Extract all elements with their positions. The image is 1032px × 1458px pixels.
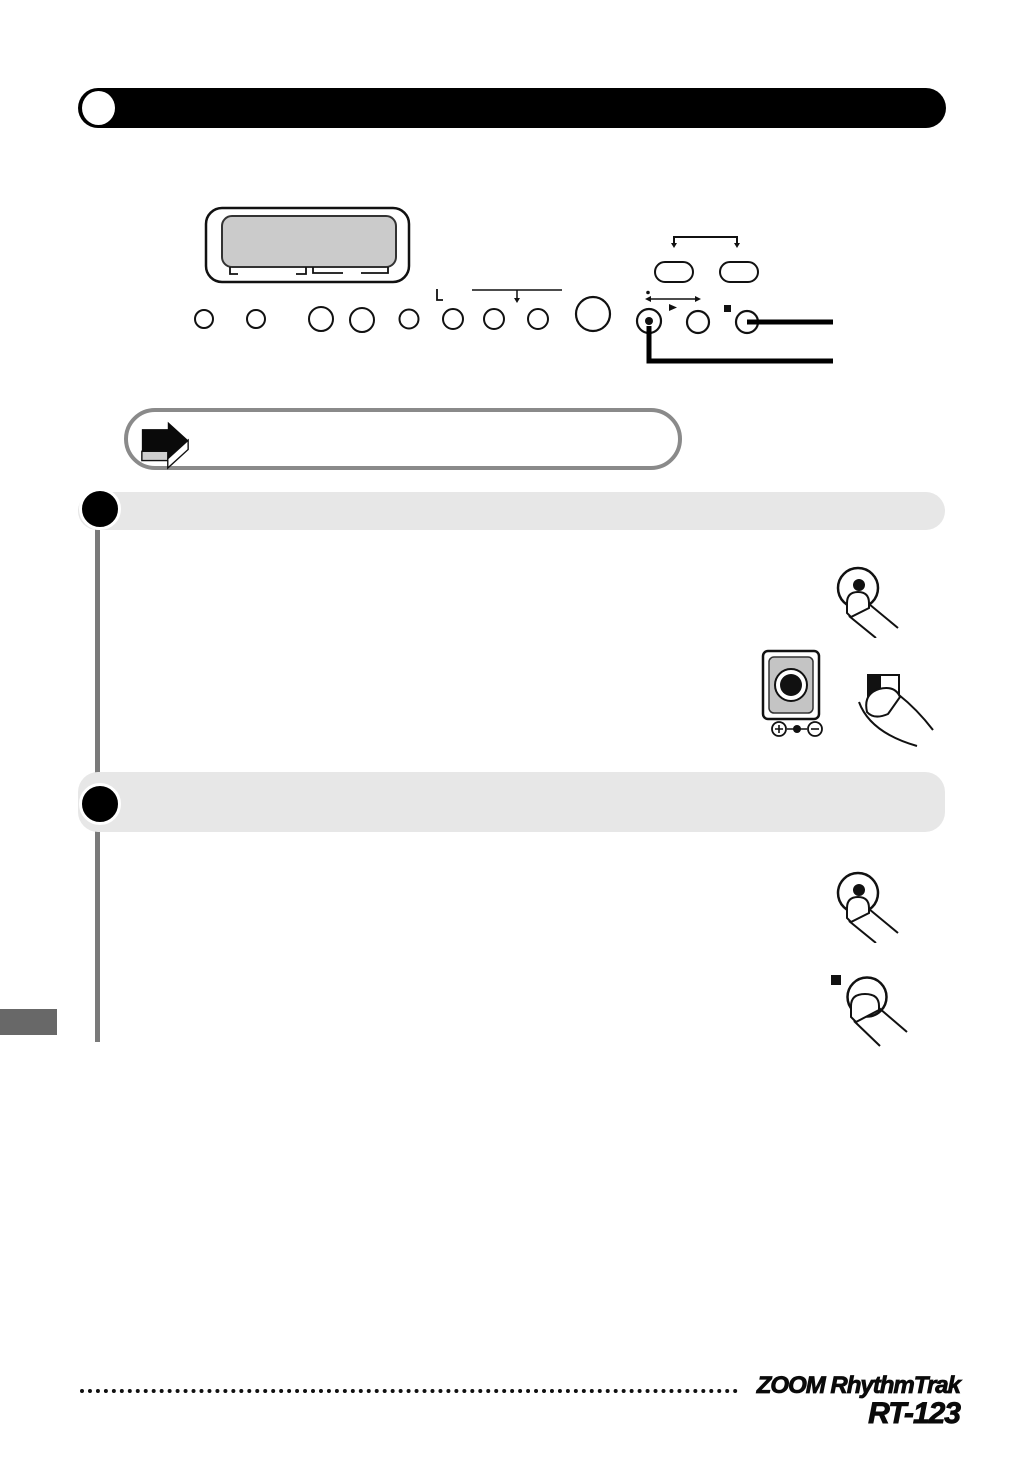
hint-callout [124, 408, 682, 470]
range-arrow-left-icon [645, 296, 651, 302]
play-icon [669, 304, 677, 311]
panel-button-8 [528, 309, 548, 329]
fingernail [851, 994, 879, 1022]
panel-button-7 [484, 309, 504, 329]
center-detent-icon [793, 725, 801, 733]
step-2-bar [78, 772, 945, 832]
panel-button-5 [400, 310, 419, 329]
stop-icon [831, 975, 841, 985]
arrow-right-3d-icon [140, 416, 190, 470]
fingernail [866, 688, 900, 717]
brand-name: ZOOM RhythmTrak [757, 1374, 960, 1398]
footer-dotted-rule [80, 1389, 738, 1393]
pill-button-2 [720, 262, 758, 282]
lcd-screen [222, 216, 396, 267]
pad-center [780, 674, 802, 696]
play-button [687, 311, 709, 333]
bracket-arrow-right-icon [734, 243, 740, 248]
overline-arrow-tip-icon [514, 298, 520, 303]
record-dot-icon [645, 317, 653, 325]
panel-button-1 [195, 310, 213, 328]
bracket-arrow-left-icon [671, 243, 677, 248]
range-dot-icon [646, 291, 650, 295]
footer-brand: ZOOM RhythmTrak RT-123 [757, 1374, 960, 1429]
panel-button-2 [247, 310, 265, 328]
range-arrow-right-icon [695, 296, 701, 302]
finger-press-record-illustration-1 [818, 558, 900, 638]
finger-press-stop-illustration [820, 968, 910, 1048]
step-2-number-marker [79, 783, 121, 825]
group-overline-bracket [472, 290, 562, 298]
step-1-number-marker [79, 488, 121, 530]
panel-button-6 [443, 309, 463, 329]
record-dot-icon [853, 579, 865, 591]
page-index-tab [0, 1009, 57, 1035]
brand-model: RT-123 [757, 1399, 960, 1429]
large-dial-button [576, 297, 610, 331]
pill-pair-bracket [674, 237, 737, 243]
panel-button-3 [309, 307, 333, 331]
fingernail [847, 592, 869, 617]
record-dot-icon [853, 884, 865, 896]
step-1-bar [78, 492, 945, 530]
finger-press-record-illustration-2 [818, 863, 900, 943]
corner-mark [437, 289, 443, 300]
fingernail [847, 897, 869, 922]
panel-button-4 [350, 308, 374, 332]
device-panel-diagram [0, 0, 1032, 400]
manual-page: ZOOM RhythmTrak RT-123 [0, 0, 1032, 1458]
pad-and-finger-illustration [755, 640, 935, 752]
stop-icon [724, 305, 731, 312]
pill-button-1 [655, 262, 693, 282]
